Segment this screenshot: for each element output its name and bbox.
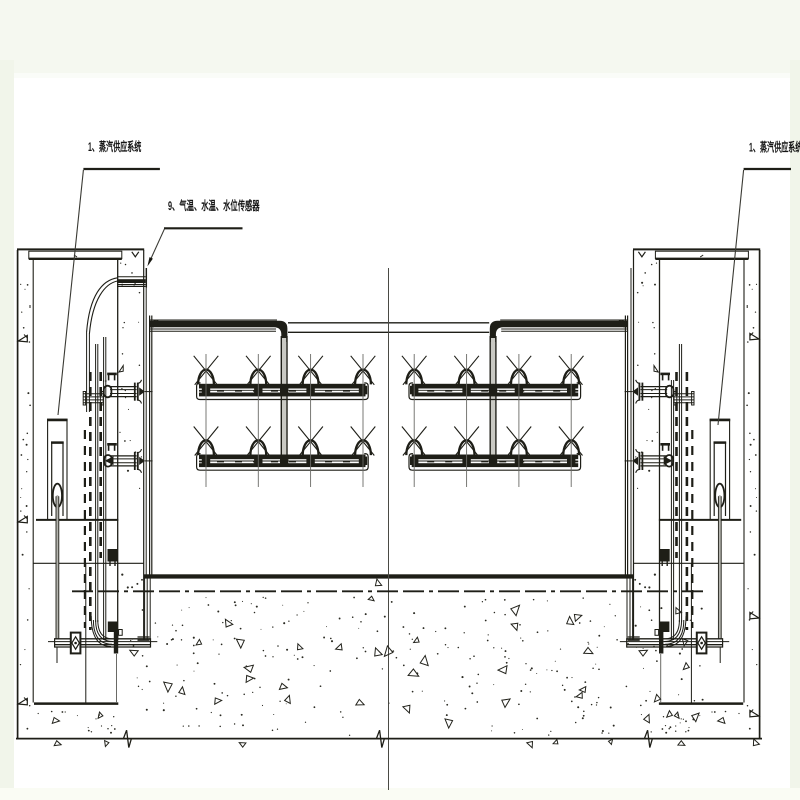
svg-text:1、蒸汽供应系统: 1、蒸汽供应系统 <box>88 139 141 155</box>
svg-text:1、蒸汽供应系统: 1、蒸汽供应系统 <box>749 139 800 155</box>
svg-text:9、气温、水温、水位传感器: 9、气温、水温、水位传感器 <box>168 198 260 214</box>
